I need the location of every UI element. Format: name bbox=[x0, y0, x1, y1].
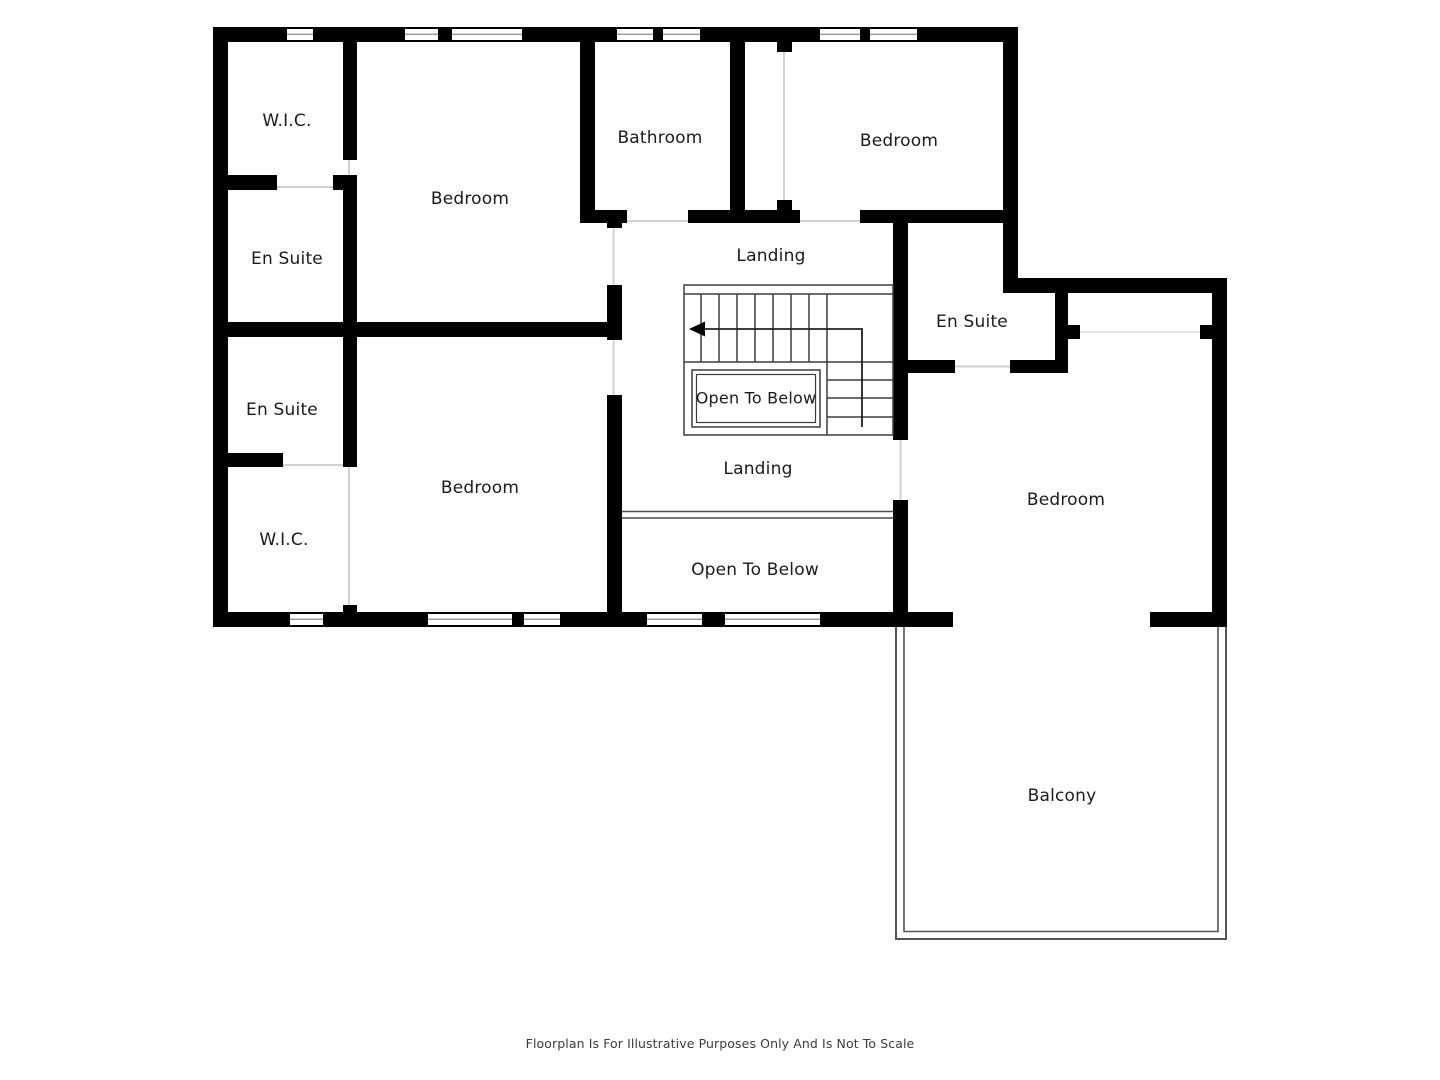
wall-step-top-right bbox=[1003, 278, 1227, 293]
room-label-bathroom: Bathroom bbox=[617, 128, 702, 148]
wall-bottom-right-a bbox=[910, 612, 953, 627]
room-label-ensuite-mid-left: En Suite bbox=[246, 400, 318, 420]
wall-opening-nub-left bbox=[1068, 325, 1080, 339]
wall-partition-nub-top bbox=[777, 42, 792, 52]
stair-direction-path bbox=[705, 329, 862, 427]
room-label-balcony: Balcony bbox=[1028, 786, 1097, 806]
wall-right bbox=[1212, 278, 1227, 627]
wall-bathroom-left bbox=[580, 42, 595, 210]
room-label-ensuite-right: En Suite bbox=[936, 312, 1008, 332]
wall-bottom-right-b bbox=[1150, 612, 1227, 627]
wall-stair-right-b bbox=[893, 500, 908, 612]
window-icon bbox=[720, 612, 825, 627]
stair-direction-arrow-icon bbox=[689, 322, 705, 337]
balcony-outline-inner bbox=[904, 627, 1218, 932]
window-icon bbox=[519, 612, 565, 627]
wall-wic-bottom-nub bbox=[343, 605, 357, 617]
wall-landing-left-c bbox=[607, 395, 622, 612]
room-label-bedroom-top-left: Bedroom bbox=[431, 189, 509, 209]
wall-opening-nub-right bbox=[1200, 325, 1212, 339]
floorplan-geometry bbox=[0, 0, 1440, 1080]
room-label-landing-bottom: Landing bbox=[723, 459, 792, 479]
wall-wic-ensuite-divider-nub bbox=[333, 175, 357, 190]
window-icon bbox=[423, 612, 517, 627]
wall-landing-left-b bbox=[607, 285, 622, 340]
window-icon bbox=[285, 612, 328, 627]
room-label-wic-top: W.I.C. bbox=[262, 111, 311, 131]
room-label-ensuite-top-left: En Suite bbox=[251, 249, 323, 269]
window-icon bbox=[447, 27, 527, 42]
window-icon bbox=[865, 27, 922, 42]
wall-wic-ensuite-divider-left bbox=[213, 175, 277, 190]
void-edge-lines bbox=[622, 512, 893, 519]
disclaimer-text: Floorplan Is For Illustrative Purposes O… bbox=[0, 1036, 1440, 1051]
window-icon bbox=[658, 27, 705, 42]
wall-ensuite-top-right bbox=[343, 190, 357, 322]
wall-bathroom-right bbox=[730, 42, 745, 210]
stair-treads-top-flight bbox=[701, 294, 809, 362]
room-label-landing-top: Landing bbox=[736, 246, 805, 266]
floorplan-page: W.I.C. Bedroom Bathroom Bedroom En Suite… bbox=[0, 0, 1440, 1080]
window-icon bbox=[815, 27, 865, 42]
room-label-open-to-below-bottom: Open To Below bbox=[691, 560, 819, 580]
room-label-bedroom-right: Bedroom bbox=[1027, 490, 1105, 510]
room-label-wic-bottom: W.I.C. bbox=[259, 530, 308, 550]
balcony-walls bbox=[896, 627, 1226, 939]
stair-treads-right-flight bbox=[827, 380, 893, 417]
window-icon bbox=[642, 612, 707, 627]
wall-ensuite-right-side bbox=[1055, 288, 1068, 373]
wall-ensuite-wic-divider-left bbox=[213, 453, 283, 467]
window-icon bbox=[400, 27, 443, 42]
window-icon bbox=[612, 27, 658, 42]
room-label-bedroom-bottom-left: Bedroom bbox=[441, 478, 519, 498]
wall-ensuite-right-bottom-a bbox=[905, 360, 955, 373]
wall-landing-left-a bbox=[607, 210, 622, 228]
room-label-bedroom-top-right: Bedroom bbox=[860, 131, 938, 151]
wall-partition-nub-bottom bbox=[777, 200, 792, 210]
wall-ensuite-mid-right bbox=[343, 337, 357, 467]
room-label-open-to-below-stairs: Open To Below bbox=[696, 389, 817, 408]
wall-upper-landing-c bbox=[860, 210, 1013, 223]
window-icon bbox=[282, 27, 318, 42]
wall-mid-horizontal bbox=[213, 322, 622, 337]
wall-upper-landing-b bbox=[688, 210, 800, 223]
balcony-outline-outer bbox=[896, 627, 1226, 939]
wall-stair-right-a bbox=[893, 212, 908, 440]
wall-wic-top-right bbox=[343, 40, 357, 160]
staircase bbox=[684, 285, 893, 435]
wall-right-upper bbox=[1003, 27, 1018, 293]
